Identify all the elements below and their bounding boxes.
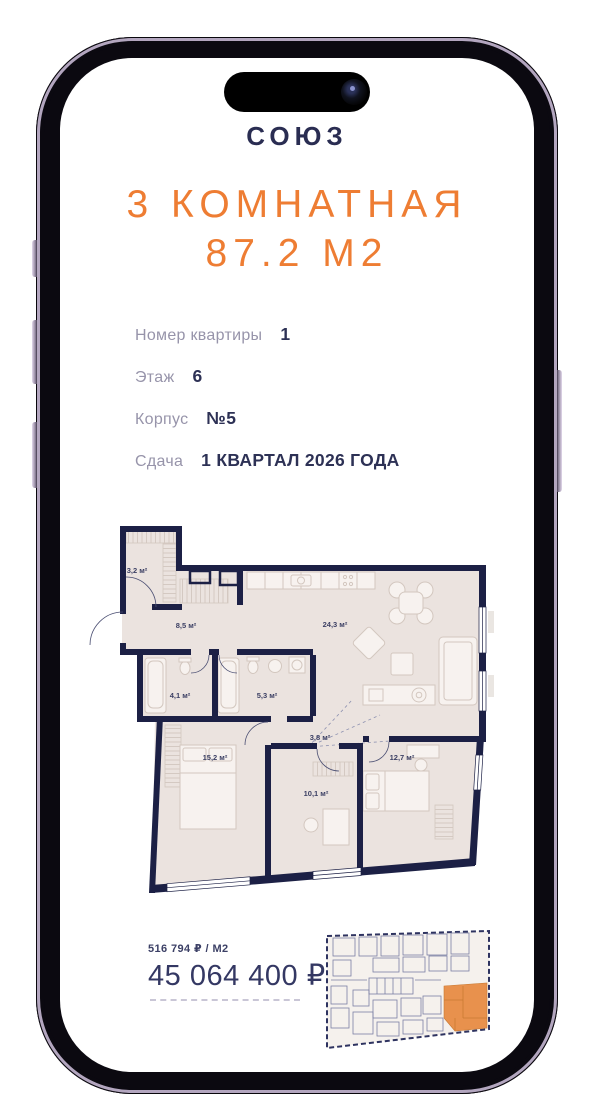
ac-unit xyxy=(488,611,494,633)
detail-row-building: Корпус №5 xyxy=(135,408,400,450)
room-label-closet: 3,2 м² xyxy=(127,566,148,575)
detail-label: Этаж xyxy=(135,369,174,387)
title-rooms: 3 КОМНАТНАЯ xyxy=(60,180,534,229)
key-plan-highlighted-unit xyxy=(444,983,487,1031)
room-label-hallway: 8,5 м² xyxy=(176,621,197,630)
phone-frame: СОЮЗ 3 КОМНАТНАЯ 87.2 М2 Номер квартиры … xyxy=(36,37,558,1094)
key-plan xyxy=(323,928,497,1058)
room-label-bathroom-2: 5,3 м² xyxy=(257,691,278,700)
detail-value: №5 xyxy=(206,408,236,429)
room-label-bathroom: 4,1 м² xyxy=(170,691,191,700)
detail-label: Номер квартиры xyxy=(135,327,262,345)
price-total: 45 064 400 ₽ xyxy=(148,958,326,993)
detail-row-apartment-number: Номер квартиры 1 xyxy=(135,324,400,366)
volume-down-button xyxy=(32,422,37,488)
detail-value: 1 xyxy=(280,324,290,345)
detail-row-delivery: Сдача 1 КВАРТАЛ 2026 ГОДА xyxy=(135,450,400,492)
brand-logo: СОЮЗ xyxy=(60,121,534,152)
listing-title: 3 КОМНАТНАЯ 87.2 М2 xyxy=(60,180,534,278)
phone-screen: СОЮЗ 3 КОМНАТНАЯ 87.2 М2 Номер квартиры … xyxy=(60,58,534,1072)
detail-value: 1 КВАРТАЛ 2026 ГОДА xyxy=(201,450,399,471)
title-area: 87.2 М2 xyxy=(60,229,534,278)
dynamic-island xyxy=(224,72,370,112)
price-underline xyxy=(150,999,300,1001)
room-label-room: 10,1 м² xyxy=(304,789,329,798)
power-button xyxy=(557,370,562,492)
room-label-kitchen-living: 24,3 м² xyxy=(323,620,348,629)
room-label-bedroom: 15,2 м² xyxy=(203,753,228,762)
page: СОЮЗ 3 КОМНАТНАЯ 87.2 М2 Номер квартиры … xyxy=(0,0,613,1120)
room-label-bedroom-2: 12,7 м² xyxy=(390,753,415,762)
mute-switch xyxy=(32,240,37,277)
detail-label: Сдача xyxy=(135,453,183,471)
details-list: Номер квартиры 1 Этаж 6 Корпус №5 Сдача … xyxy=(135,324,400,492)
floor-plan: 3,2 м² 8,5 м² 24,3 м² 4,1 м² 5,3 м² 3,8 … xyxy=(95,515,505,905)
room-label-corridor: 3,8 м² xyxy=(310,733,331,742)
detail-row-floor: Этаж 6 xyxy=(135,366,400,408)
ac-unit xyxy=(488,675,494,697)
detail-value: 6 xyxy=(192,366,202,387)
volume-up-button xyxy=(32,320,37,384)
price-per-m2: 516 794 ₽ / М2 xyxy=(148,942,326,955)
price-block: 516 794 ₽ / М2 45 064 400 ₽ xyxy=(148,942,326,1001)
front-camera-icon xyxy=(341,79,367,105)
detail-label: Корпус xyxy=(135,411,188,429)
